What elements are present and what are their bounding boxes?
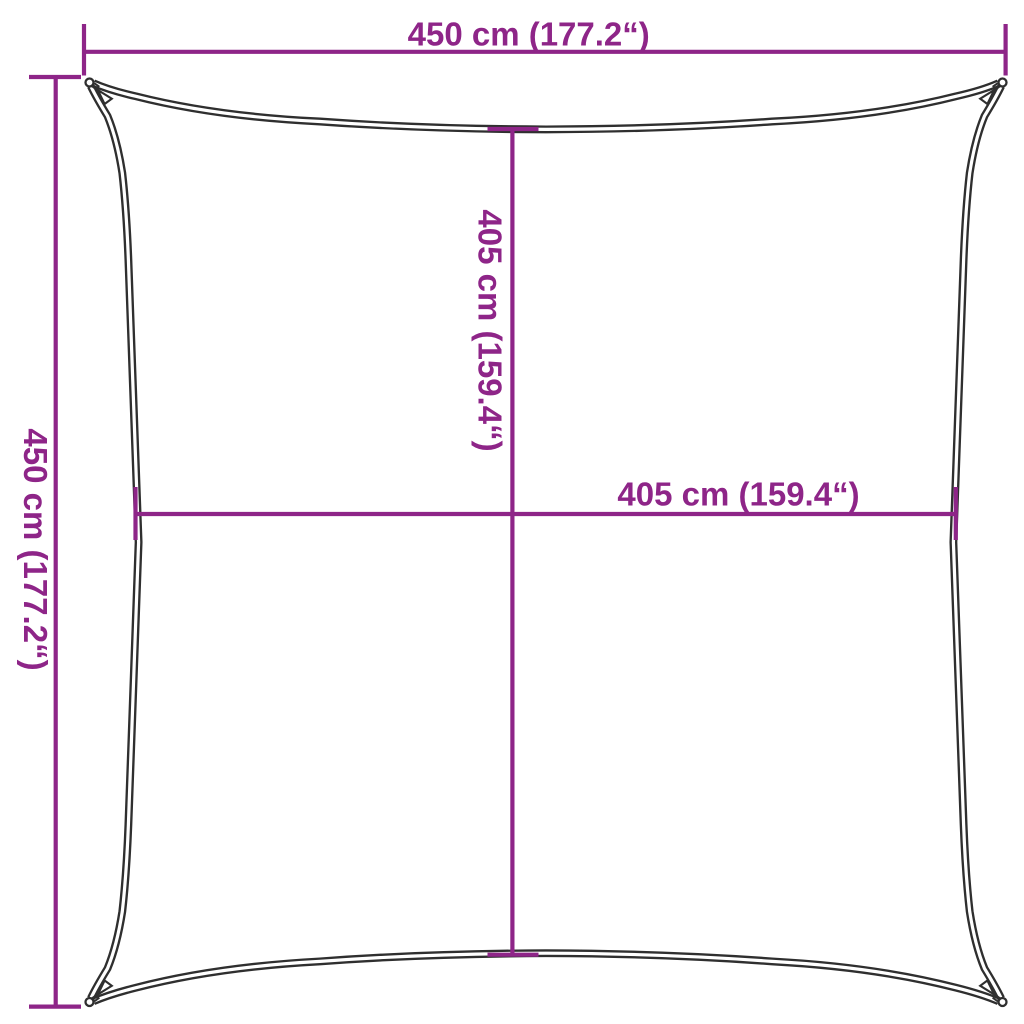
svg-text:405 cm (159.4“): 405 cm (159.4“): [617, 476, 859, 513]
svg-text:450 cm (177.2“): 450 cm (177.2“): [408, 16, 650, 53]
svg-text:405 cm (159.4“): 405 cm (159.4“): [472, 209, 509, 451]
svg-text:450 cm (177.2“): 450 cm (177.2“): [17, 428, 54, 670]
